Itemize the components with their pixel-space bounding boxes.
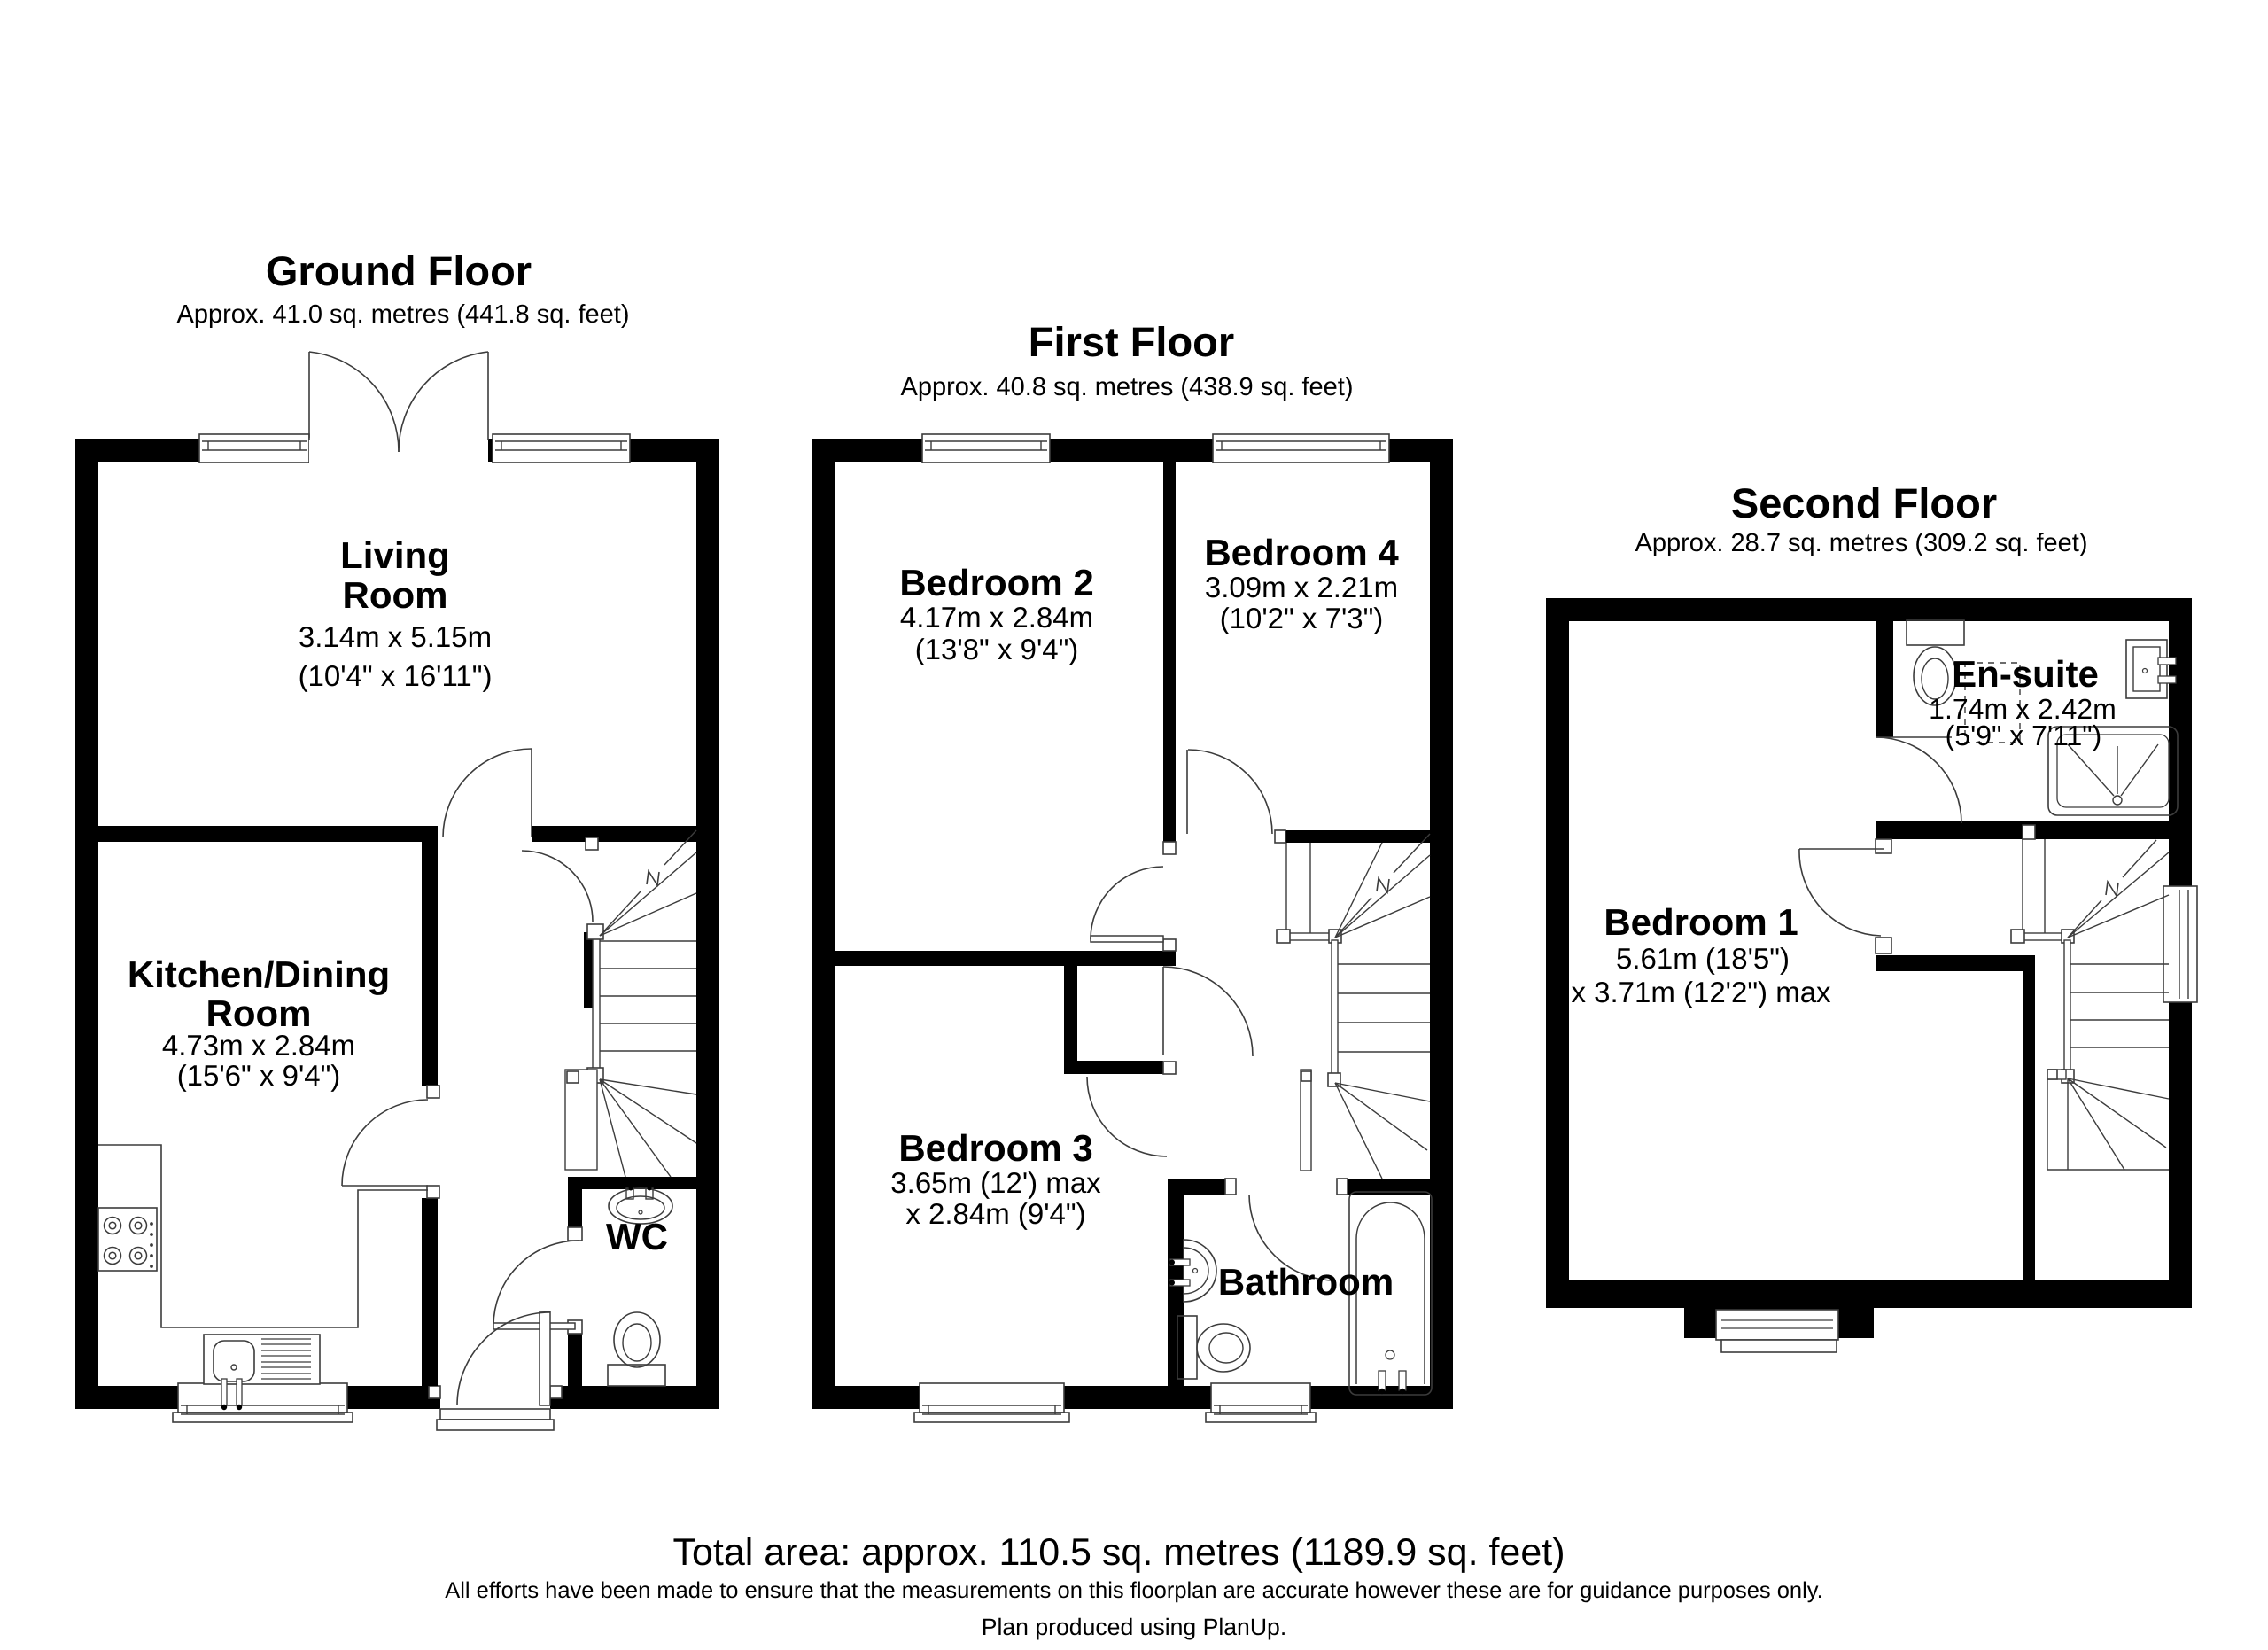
svg-text:Second Floor: Second Floor	[1731, 479, 1997, 526]
svg-text:Ground Floor: Ground Floor	[266, 247, 532, 294]
svg-text:4.73m x 2.84m: 4.73m x 2.84m	[162, 1029, 355, 1062]
svg-text:(5'9" x 7'11"): (5'9" x 7'11")	[1946, 720, 2102, 751]
svg-text:Bedroom 1: Bedroom 1	[1604, 901, 1798, 943]
svg-text:Bedroom 4: Bedroom 4	[1204, 532, 1399, 573]
svg-text:All efforts have been made to: All efforts have been made to ensure tha…	[445, 1578, 1822, 1603]
svg-text:Plan produced using PlanUp.: Plan produced using PlanUp.	[982, 1614, 1286, 1640]
svg-text:Room: Room	[206, 992, 312, 1034]
svg-text:x 3.71m (12'2") max: x 3.71m (12'2") max	[1571, 976, 1831, 1008]
svg-text:3.14m x 5.15m: 3.14m x 5.15m	[299, 620, 492, 653]
svg-text:Approx. 41.0 sq. metres (441.8: Approx. 41.0 sq. metres (441.8 sq. feet)	[177, 300, 630, 329]
svg-text:4.17m x 2.84m: 4.17m x 2.84m	[900, 601, 1093, 634]
svg-text:Total area: approx. 110.5 sq.: Total area: approx. 110.5 sq. metres (11…	[672, 1531, 1565, 1574]
svg-text:Living: Living	[340, 534, 450, 576]
svg-text:WC: WC	[606, 1216, 668, 1257]
svg-text:(10'4" x 16'11"): (10'4" x 16'11")	[299, 659, 493, 692]
svg-text:Bathroom: Bathroom	[1218, 1261, 1394, 1303]
svg-text:En-suite: En-suite	[1952, 653, 2099, 695]
svg-text:x 2.84m (9'4"): x 2.84m (9'4")	[905, 1197, 1085, 1230]
svg-text:Approx. 28.7 sq. metres (309.2: Approx. 28.7 sq. metres (309.2 sq. feet)	[1635, 529, 2088, 557]
svg-text:Kitchen/Dining: Kitchen/Dining	[128, 953, 390, 995]
svg-text:Room: Room	[343, 574, 448, 616]
svg-text:3.09m x 2.21m: 3.09m x 2.21m	[1205, 571, 1398, 603]
svg-text:(13'8" x 9'4"): (13'8" x 9'4")	[915, 633, 1079, 665]
svg-text:Approx. 40.8 sq. metres (438.9: Approx. 40.8 sq. metres (438.9 sq. feet)	[901, 373, 1354, 401]
svg-text:Bedroom 2: Bedroom 2	[899, 562, 1093, 603]
svg-text:Bedroom 3: Bedroom 3	[898, 1127, 1092, 1169]
svg-text:(15'6" x 9'4"): (15'6" x 9'4")	[177, 1059, 341, 1092]
svg-text:5.61m (18'5"): 5.61m (18'5")	[1616, 942, 1790, 975]
svg-text:(10'2" x 7'3"): (10'2" x 7'3")	[1220, 602, 1384, 634]
svg-text:First Floor: First Floor	[1029, 318, 1234, 365]
svg-text:3.65m (12') max: 3.65m (12') max	[890, 1166, 1101, 1199]
